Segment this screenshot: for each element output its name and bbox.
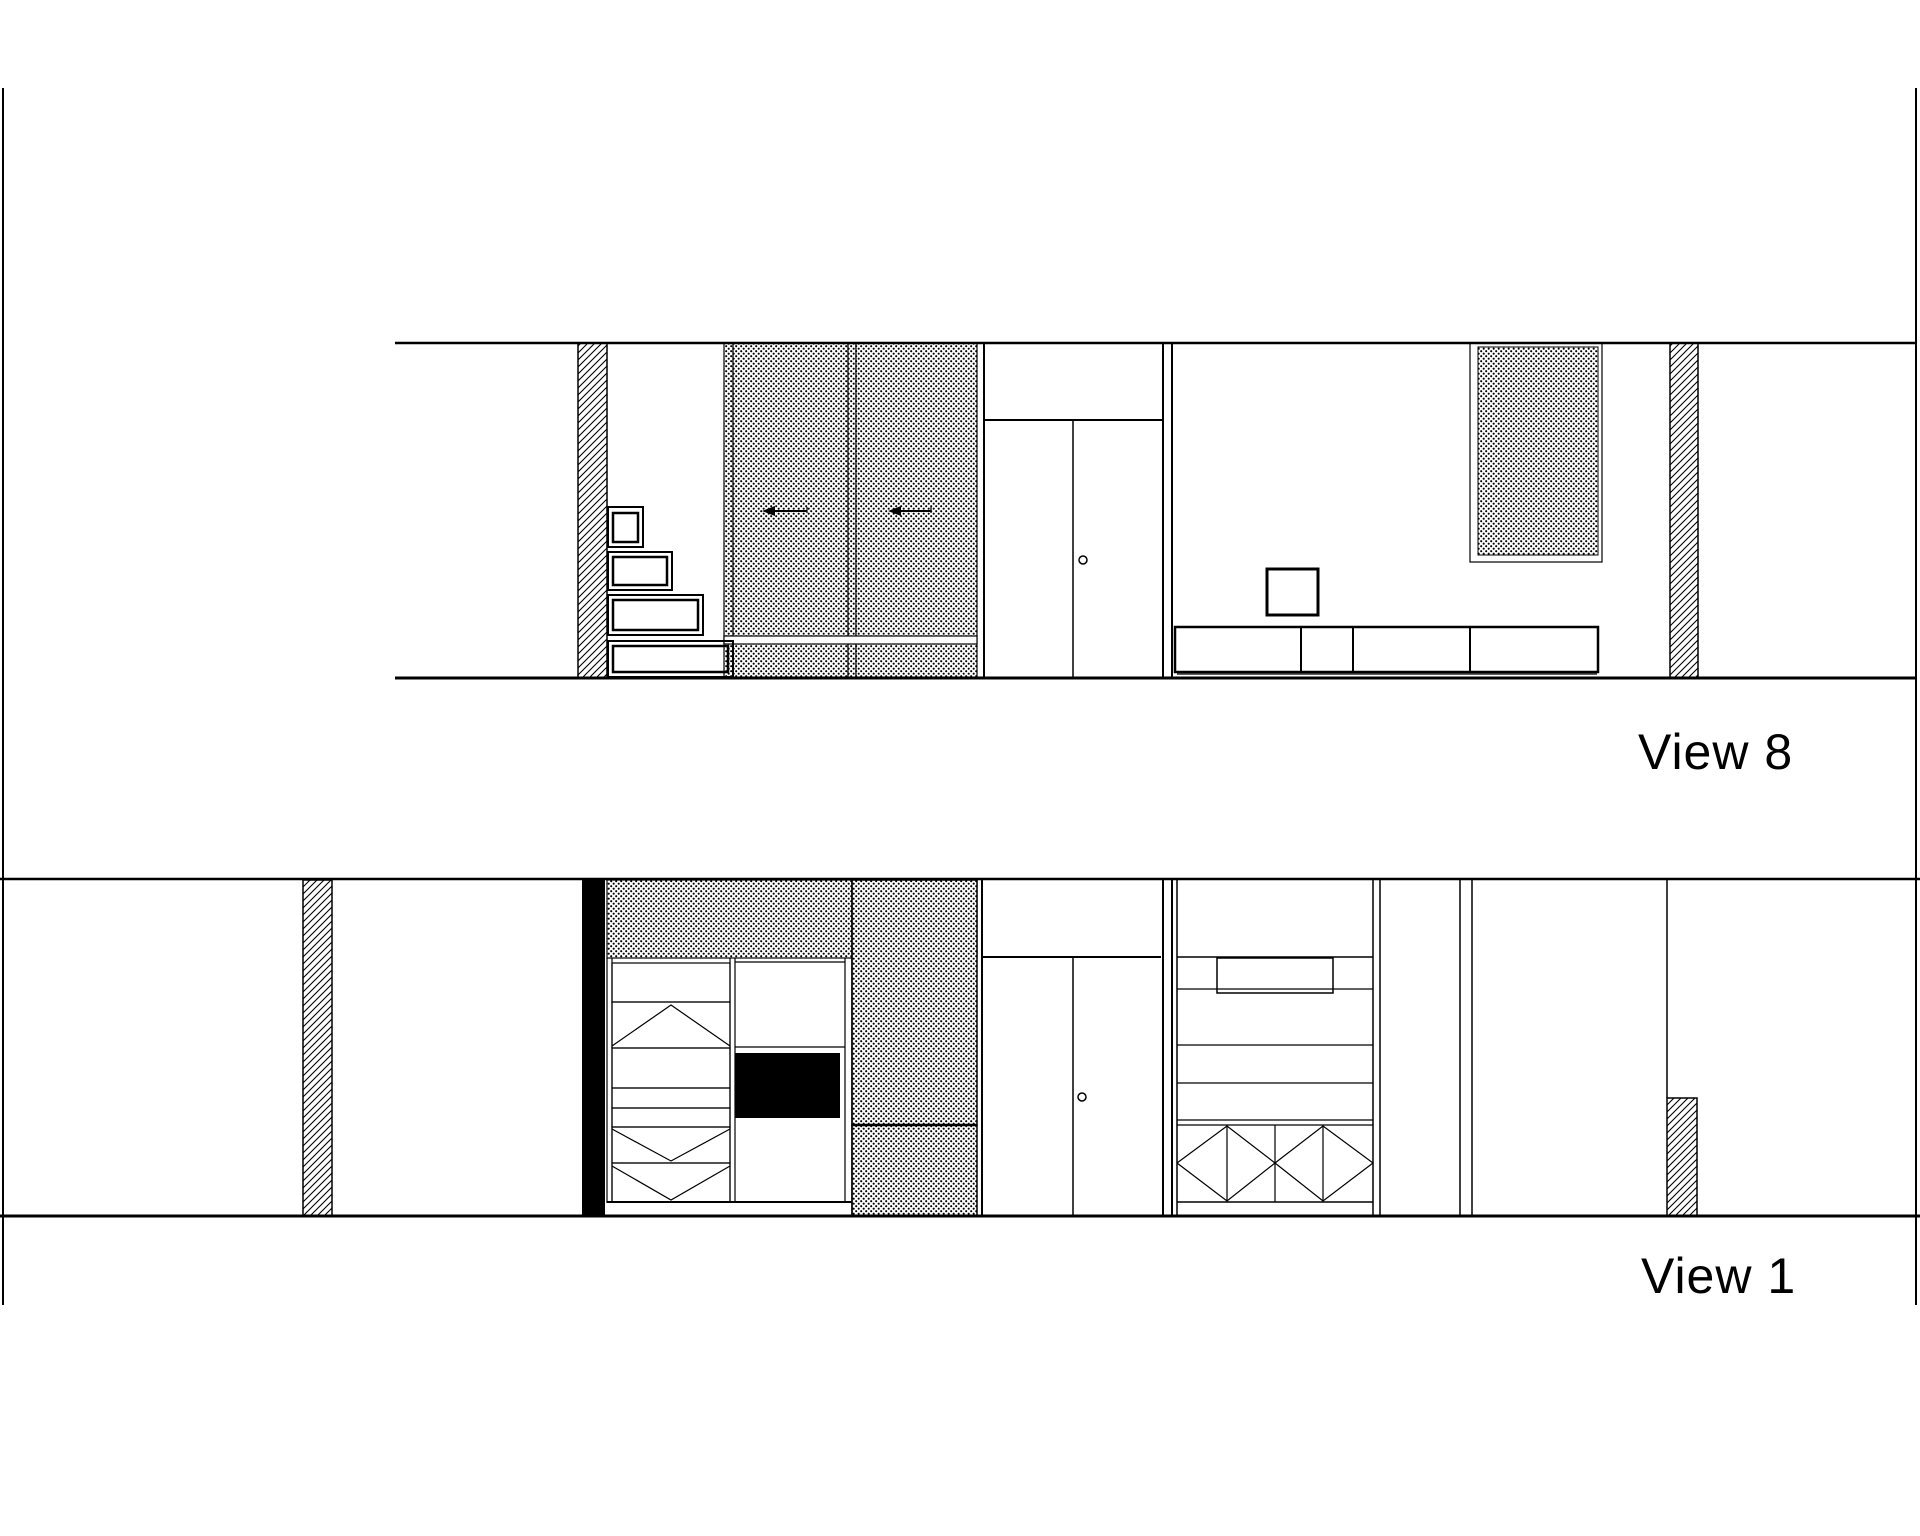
v1-half-wall-hatch	[1667, 1098, 1697, 1216]
v1-shelf-row-5	[612, 1163, 730, 1202]
v1-shelf-row-1	[612, 963, 730, 1002]
v8-wall-art-box	[1267, 569, 1318, 615]
v1-shelf-row-4	[612, 1127, 730, 1163]
v1-shelf-row-3	[612, 1048, 730, 1088]
v8-cut-wall-hatch-right	[1670, 343, 1698, 678]
v8-slider-divider	[848, 343, 856, 678]
v1-door-knob	[1078, 1093, 1086, 1101]
v1-cut-wall-hatch	[303, 880, 332, 1216]
v1-cut-wall-solid	[582, 880, 605, 1216]
v8-slider-edge-strip	[724, 343, 733, 678]
v1-chevron-down-2	[612, 1166, 730, 1200]
drawing-sheet: View 8 View 1	[0, 0, 1920, 1536]
v1-diamond-door-1	[1177, 1126, 1275, 1201]
v8-cut-wall-hatch-left	[578, 343, 607, 678]
v8-slider-rail-band	[724, 636, 977, 644]
v1-slider-lower-dots	[852, 1125, 977, 1216]
v1-chevron-down-1	[612, 1129, 730, 1161]
v1-slider-upper-dots	[852, 880, 977, 1125]
v8-stair-step4-inner	[613, 646, 728, 672]
v1-open-niche	[1217, 958, 1333, 993]
view8-label: View 8	[1638, 727, 1793, 777]
v8-door-knob	[1079, 556, 1087, 564]
v1-diamond-door-2	[1275, 1126, 1373, 1201]
v8-stair-step2-inner	[613, 557, 667, 585]
view1-label: View 1	[1641, 1251, 1796, 1301]
v1-chevron-up	[612, 1005, 730, 1046]
v8-lowboard-outline	[1175, 627, 1598, 672]
v1-drawer-row-1	[612, 1088, 730, 1108]
v8-stair-step3-inner	[613, 600, 698, 630]
shape-layer	[0, 88, 1920, 1305]
v1-tv-panel	[735, 1053, 840, 1118]
elevation-drawing	[0, 0, 1920, 1536]
v8-wall-panel-dots	[1478, 347, 1598, 555]
v8-stair-step1-inner	[613, 513, 638, 542]
v1-drawer-row-2	[612, 1108, 730, 1127]
v1-shelf-row-2	[612, 1002, 730, 1048]
